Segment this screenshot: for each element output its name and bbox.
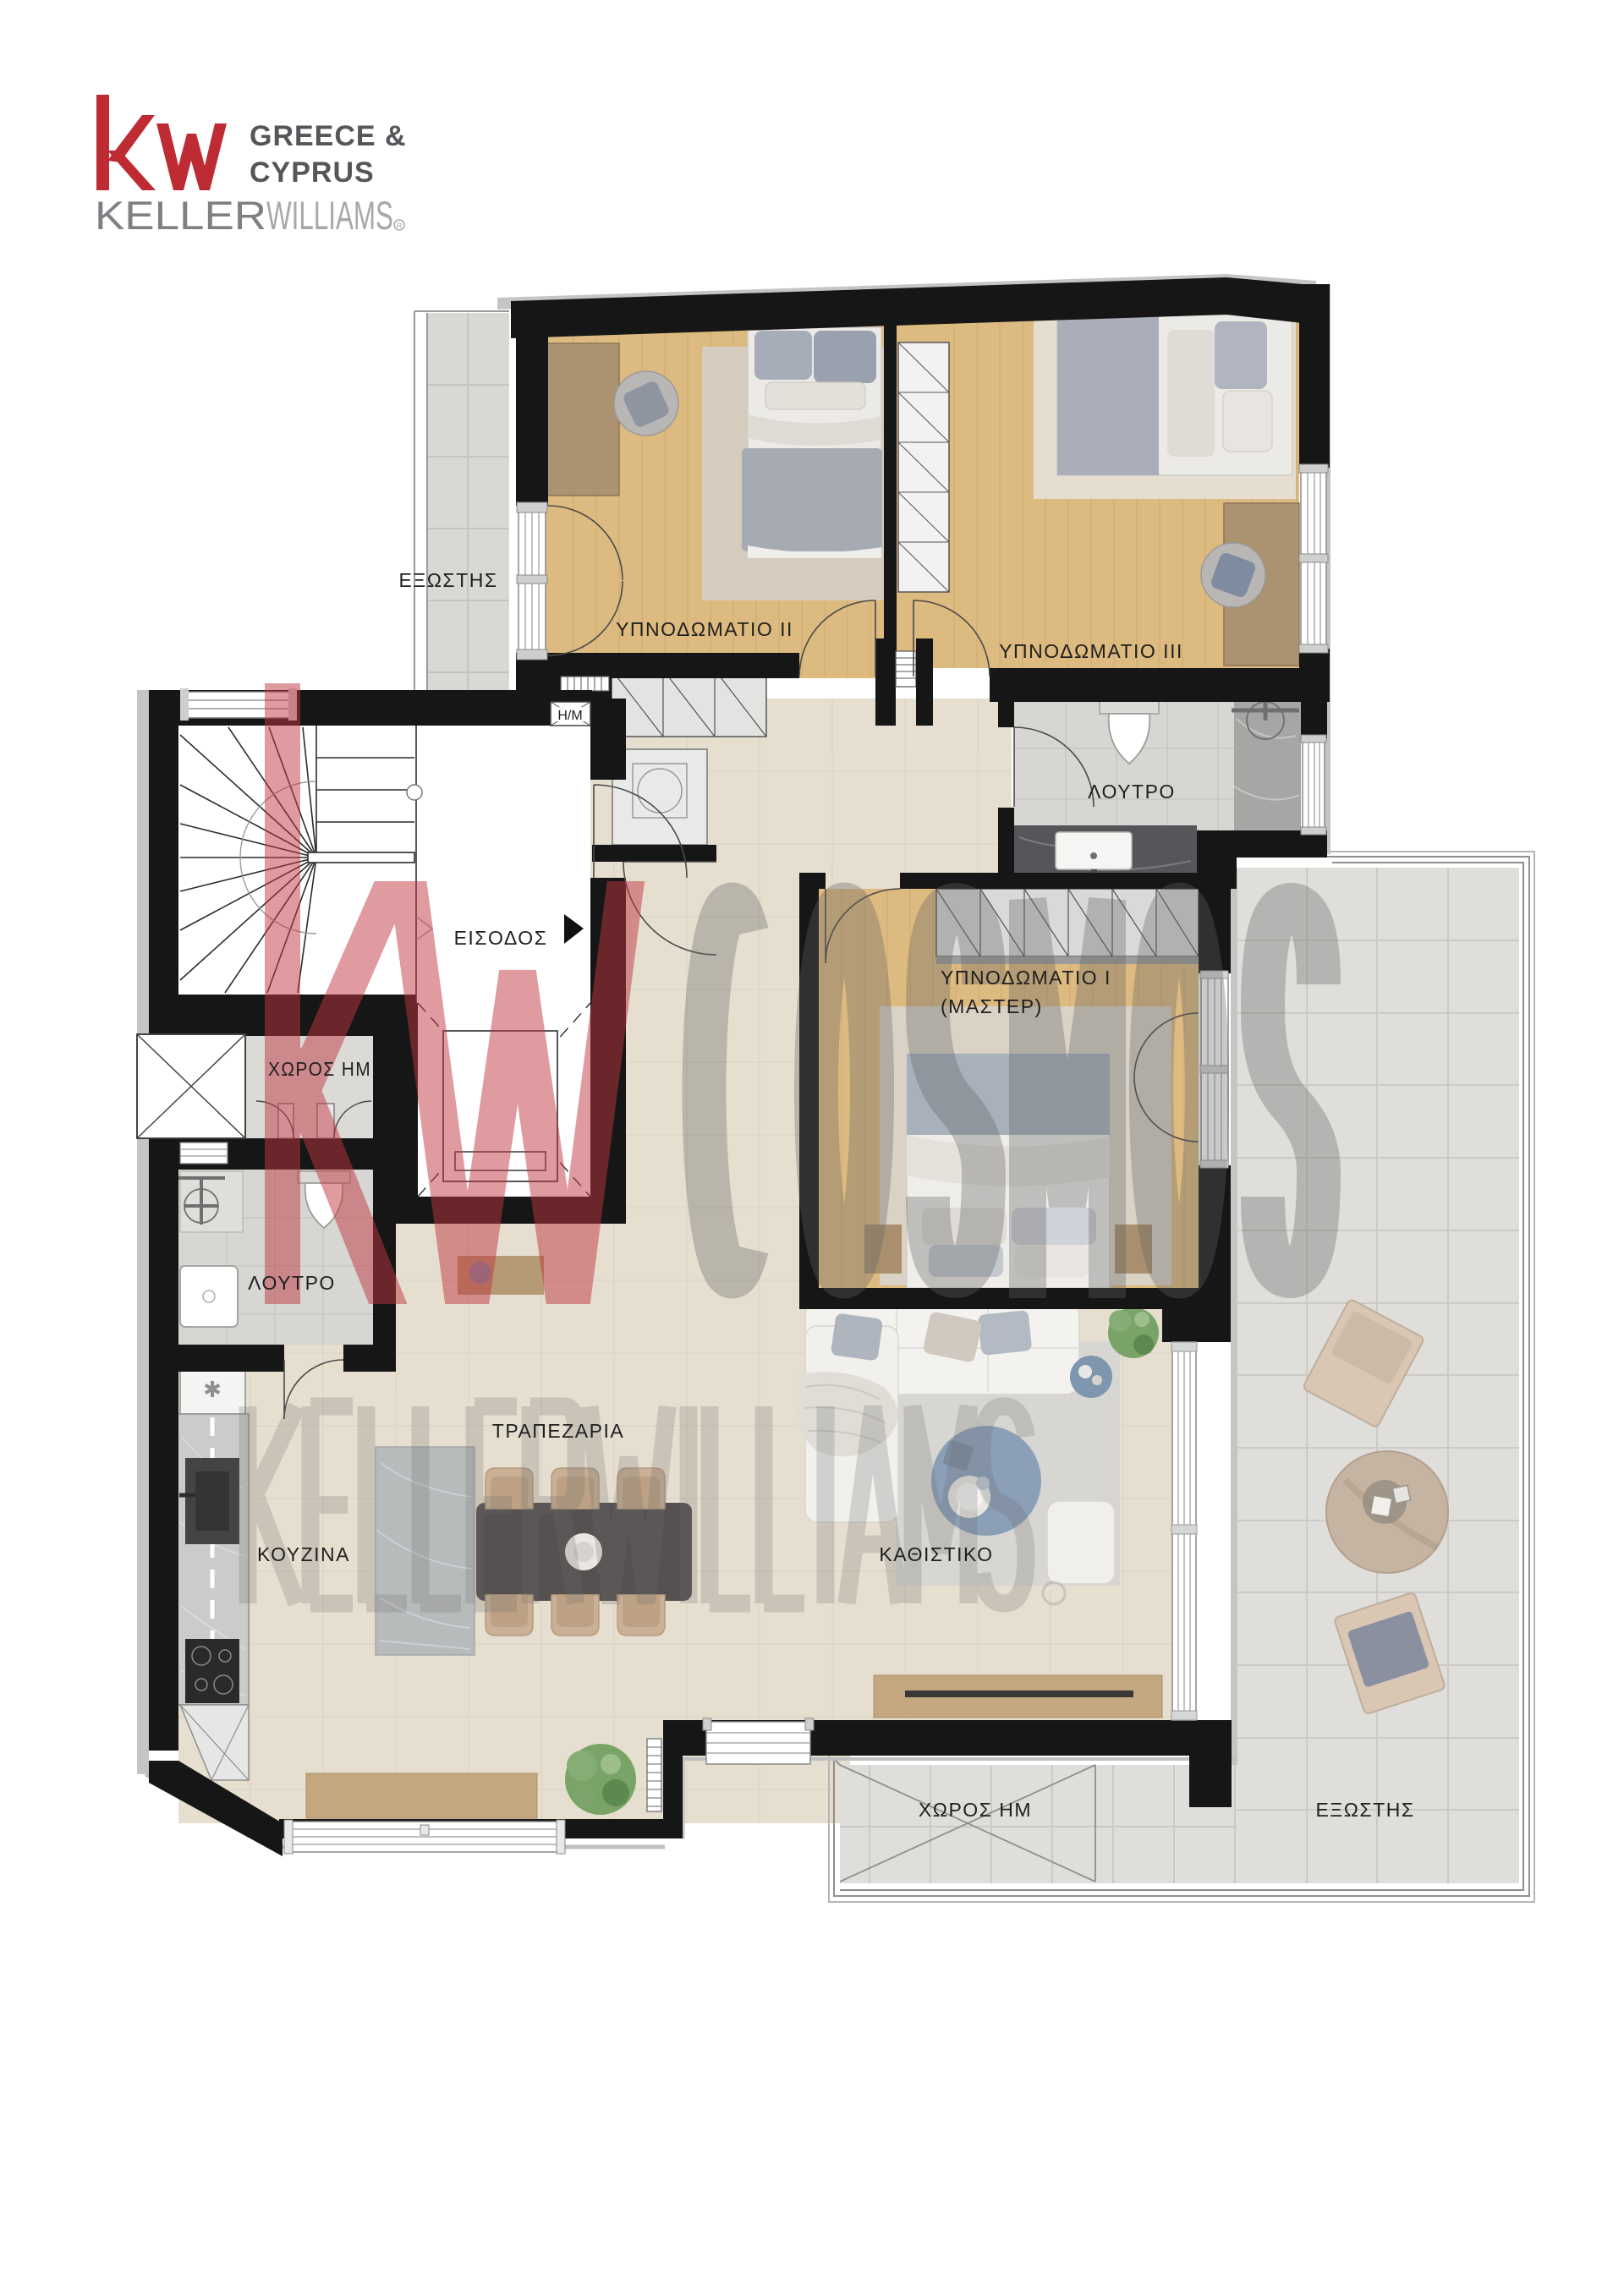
svg-text:(ΜΑΣΤΕΡ): (ΜΑΣΤΕΡ) [941,995,1043,1017]
svg-text:ΚΑΘΙΣΤΙΚΟ: ΚΑΘΙΣΤΙΚΟ [879,1543,993,1565]
svg-text:ΕΙΣΟΔΟΣ: ΕΙΣΟΔΟΣ [454,927,548,949]
svg-text:GREECE &: GREECE & [250,120,407,152]
svg-text:ΛΟΥΤΡΟ: ΛΟΥΤΡΟ [1088,781,1176,803]
svg-text:KELLER: KELLER [95,193,266,238]
svg-text:ΧΩΡΟΣ ΗΜ: ΧΩΡΟΣ ΗΜ [919,1799,1032,1821]
svg-text:ΥΠΝΟΔΩΜΑΤΙΟ Ι: ΥΠΝΟΔΩΜΑΤΙΟ Ι [941,967,1111,989]
svg-text:WILLIAMS: WILLIAMS [266,193,393,238]
svg-text:ΛΟΥΤΡΟ: ΛΟΥΤΡΟ [248,1272,336,1294]
svg-text:ΥΠΝΟΔΩΜΑΤΙΟ ΙΙΙ: ΥΠΝΟΔΩΜΑΤΙΟ ΙΙΙ [999,640,1183,662]
svg-text:ΤΡΑΠΕΖΑΡΙΑ: ΤΡΑΠΕΖΑΡΙΑ [492,1420,624,1442]
svg-text:Η/Μ: Η/Μ [557,709,582,723]
svg-text:ΕΞΩΣΤΗΣ: ΕΞΩΣΤΗΣ [398,569,497,591]
svg-text:✱: ✱ [203,1377,222,1402]
svg-text:ΥΠΝΟΔΩΜΑΤΙΟ ΙΙ: ΥΠΝΟΔΩΜΑΤΙΟ ΙΙ [616,618,793,640]
svg-text:ΚΟΥΖΙΝΑ: ΚΟΥΖΙΝΑ [257,1543,350,1565]
svg-text:R: R [397,222,403,230]
svg-text:ΧΩΡΟΣ ΗΜ: ΧΩΡΟΣ ΗΜ [268,1058,371,1080]
svg-text:ΕΞΩΣΤΗΣ: ΕΞΩΣΤΗΣ [1315,1799,1414,1821]
svg-text:CYPRUS: CYPRUS [250,156,375,189]
